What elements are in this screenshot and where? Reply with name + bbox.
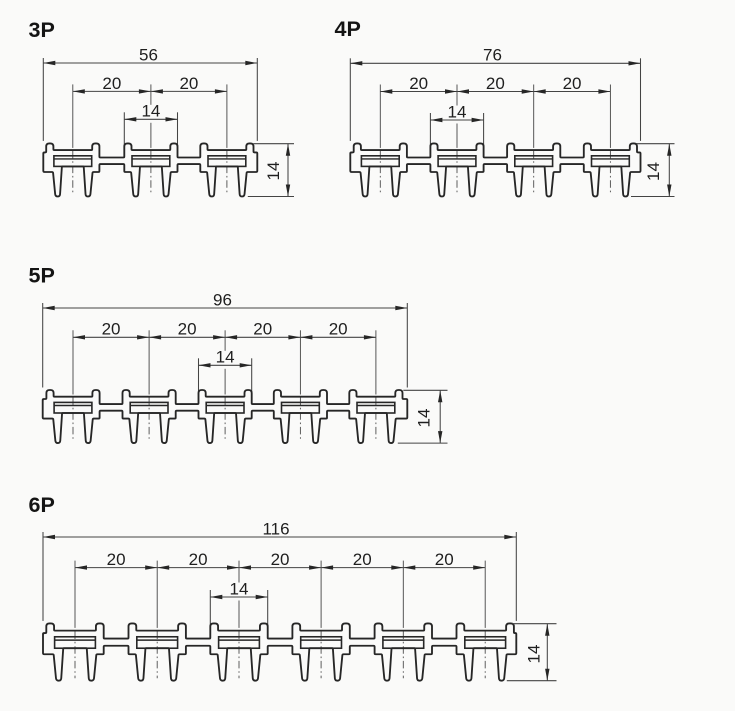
svg-text:20: 20 xyxy=(329,320,348,339)
svg-text:20: 20 xyxy=(271,550,290,569)
svg-text:116: 116 xyxy=(262,519,289,538)
svg-text:20: 20 xyxy=(435,550,454,569)
svg-text:20: 20 xyxy=(563,74,582,93)
svg-text:20: 20 xyxy=(189,550,208,569)
svg-text:96: 96 xyxy=(213,290,232,309)
svg-text:14: 14 xyxy=(414,409,433,428)
svg-text:20: 20 xyxy=(102,74,121,93)
svg-text:20: 20 xyxy=(409,74,428,93)
svg-text:14: 14 xyxy=(524,645,543,664)
svg-text:14: 14 xyxy=(264,162,283,181)
svg-text:56: 56 xyxy=(139,45,158,64)
svg-text:20: 20 xyxy=(179,74,198,93)
svg-text:76: 76 xyxy=(483,46,502,65)
svg-text:20: 20 xyxy=(178,320,197,339)
svg-text:5P: 5P xyxy=(29,264,55,288)
svg-text:14: 14 xyxy=(644,162,663,181)
svg-text:6P: 6P xyxy=(29,493,55,517)
svg-text:20: 20 xyxy=(253,320,272,339)
svg-text:3P: 3P xyxy=(29,18,55,42)
svg-text:20: 20 xyxy=(353,550,372,569)
svg-text:4P: 4P xyxy=(335,17,361,41)
svg-text:20: 20 xyxy=(102,320,121,339)
svg-text:20: 20 xyxy=(107,550,126,569)
svg-text:20: 20 xyxy=(486,74,505,93)
